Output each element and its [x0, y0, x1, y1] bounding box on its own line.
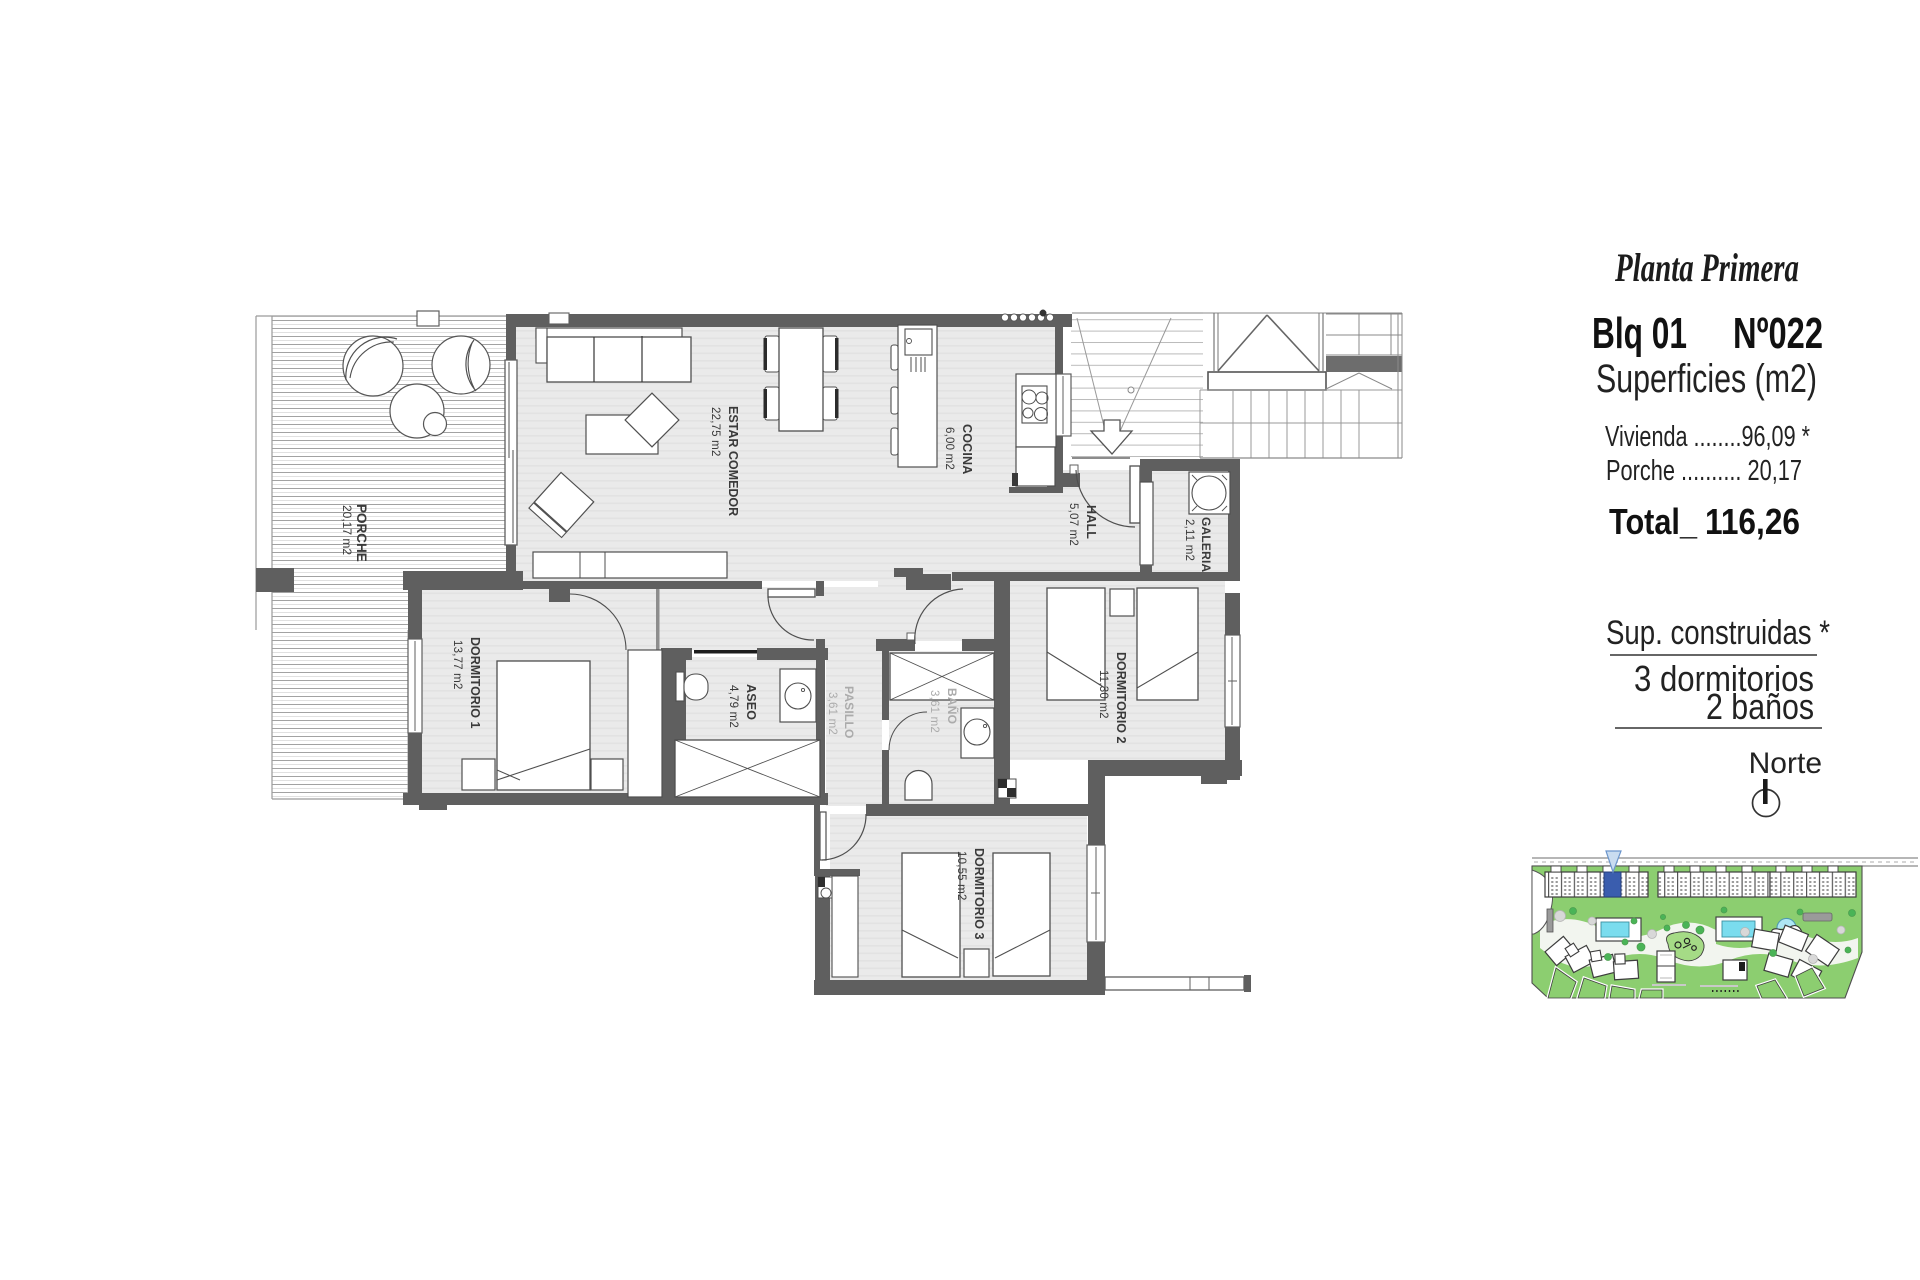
svg-text:3,61 m2: 3,61 m2 [928, 690, 940, 733]
svg-text:22,75 m2: 22,75 m2 [709, 407, 721, 457]
svg-text:PORCHE: PORCHE [354, 504, 369, 562]
svg-text:2,11 m2: 2,11 m2 [1183, 519, 1195, 561]
svg-text:Sup. construidas *: Sup. construidas * [1606, 614, 1830, 652]
svg-text:DORMITORIO 1: DORMITORIO 1 [468, 637, 482, 728]
svg-text:PASILLO: PASILLO [842, 686, 856, 739]
svg-text:ASEO: ASEO [744, 684, 758, 720]
svg-text:GALERIA: GALERIA [1199, 517, 1213, 573]
svg-text:13,77 m2: 13,77 m2 [451, 640, 463, 690]
svg-text:Norte: Norte [1749, 747, 1822, 780]
svg-text:20,17 m2: 20,17 m2 [340, 505, 354, 555]
svg-text:BAÑO: BAÑO [945, 688, 960, 724]
svg-text:Vivienda ........96,09 *: Vivienda ........96,09 * [1605, 421, 1810, 453]
svg-text:5,07 m2: 5,07 m2 [1067, 503, 1079, 546]
svg-text:Superficies (m2): Superficies (m2) [1596, 357, 1817, 401]
svg-text:4,79 m2: 4,79 m2 [727, 685, 739, 728]
svg-text:Blq 01: Blq 01 [1592, 309, 1687, 358]
svg-text:DORMITORIO 2: DORMITORIO 2 [1114, 652, 1128, 743]
svg-text:116,26: 116,26 [1705, 501, 1800, 542]
svg-text:Planta Primera: Planta Primera [1614, 245, 1799, 290]
svg-text:10,55 m2: 10,55 m2 [955, 851, 967, 901]
svg-text:2 baños: 2 baños [1706, 686, 1814, 727]
svg-text:Porche .......... 20,17: Porche .......... 20,17 [1606, 455, 1802, 487]
svg-text:HALL: HALL [1084, 505, 1098, 539]
svg-text:ESTAR COMEDOR: ESTAR COMEDOR [726, 406, 740, 516]
svg-text:3,61 m2: 3,61 m2 [826, 692, 838, 735]
svg-text:Nº022: Nº022 [1733, 309, 1823, 358]
svg-text:DORMITORIO 3: DORMITORIO 3 [972, 848, 986, 939]
svg-text:Total_: Total_ [1609, 501, 1698, 542]
svg-text:6,00 m2: 6,00 m2 [943, 427, 955, 470]
svg-text:11,30 m2: 11,30 m2 [1097, 670, 1109, 719]
svg-text:COCINA: COCINA [960, 424, 974, 475]
